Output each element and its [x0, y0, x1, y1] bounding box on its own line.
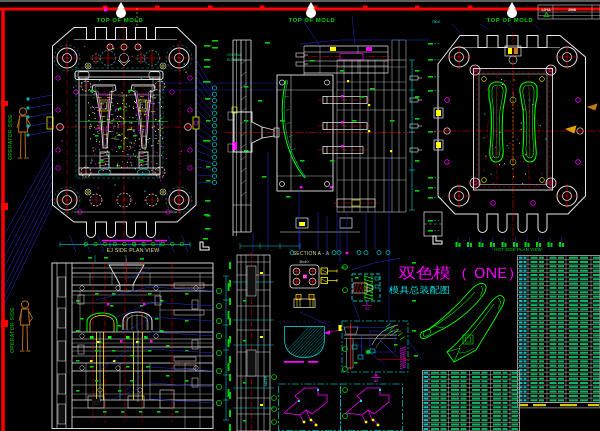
svg-text:TOP OF MOLD: TOP OF MOLD — [97, 18, 144, 24]
svg-text:2008: 2008 — [568, 8, 576, 12]
svg-text:HOT SIDE PLAN VIEW: HOT SIDE PLAN VIEW — [494, 247, 542, 252]
svg-text:LOYA: LOYA — [541, 8, 551, 12]
svg-text:41: 41 — [374, 379, 378, 383]
svg-text:B: B — [375, 372, 378, 377]
svg-text:E: E — [366, 301, 369, 306]
svg-text:OPERATOR SIDE: OPERATOR SIDE — [8, 114, 14, 160]
svg-text:OVERVAL: OVERVAL — [227, 53, 242, 57]
svg-text:OPERATOR SIDE: OPERATOR SIDE — [10, 307, 16, 353]
svg-text:TOP OF MOLD: TOP OF MOLD — [289, 18, 336, 24]
svg-text:TOP OF MOLD: TOP OF MOLD — [487, 18, 534, 24]
svg-text:41: 41 — [365, 307, 369, 311]
svg-text:Bx40: Bx40 — [299, 259, 309, 264]
svg-text:EJ SIDE PLAN VIEW: EJ SIDE PLAN VIEW — [107, 248, 160, 254]
svg-text:SECTION A - A: SECTION A - A — [293, 251, 330, 257]
svg-text:750.0: 750.0 — [432, 20, 441, 24]
svg-text:NOTE: NOTE — [264, 375, 268, 386]
